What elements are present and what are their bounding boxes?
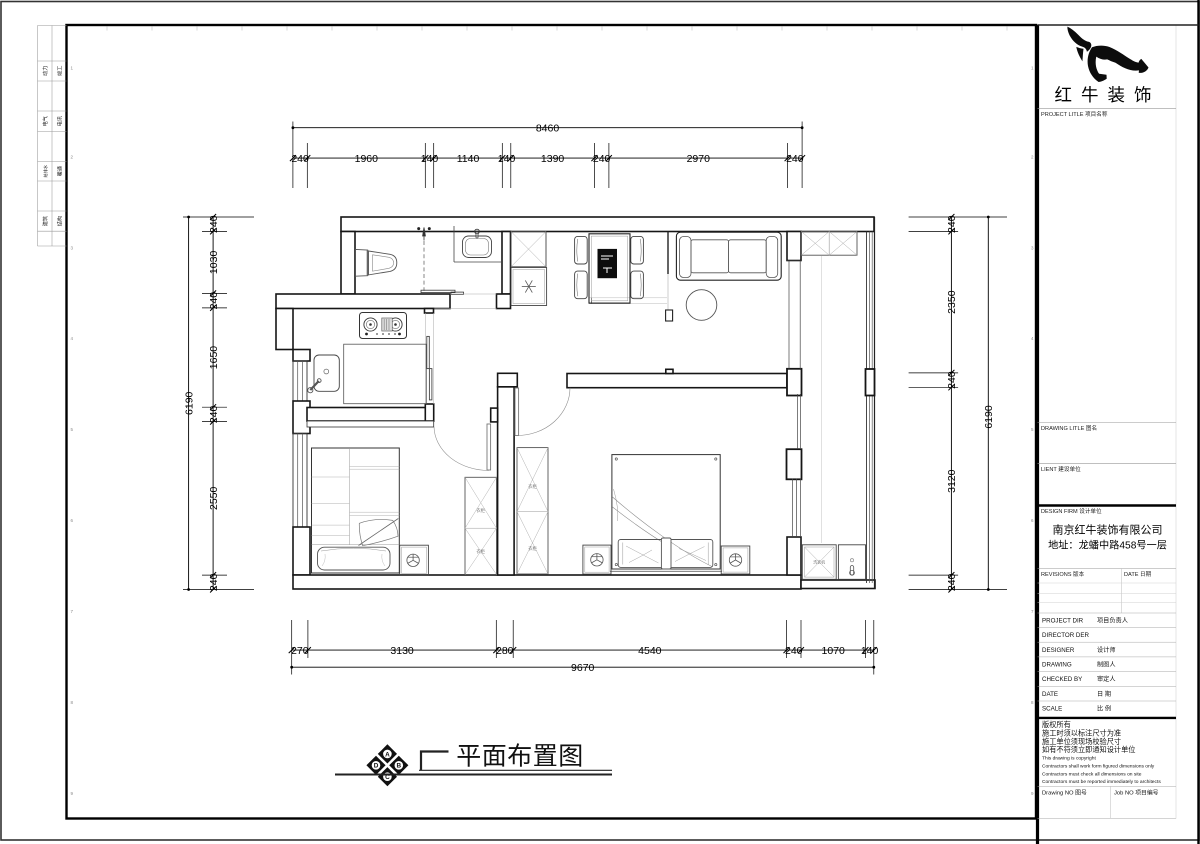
- svg-text:Drawing NO 图号: Drawing NO 图号: [1042, 789, 1087, 797]
- svg-text:衣柜: 衣柜: [476, 548, 485, 555]
- svg-text:DRAWING: DRAWING: [1042, 661, 1072, 668]
- svg-text:电讯: 电讯: [55, 115, 63, 126]
- svg-text:平面布置图: 平面布置图: [456, 743, 584, 771]
- svg-text:240: 240: [946, 371, 958, 389]
- svg-text:竣工: 竣工: [55, 66, 63, 76]
- svg-text:240: 240: [785, 645, 803, 657]
- svg-text:6190: 6190: [983, 405, 995, 429]
- svg-text:动力: 动力: [41, 66, 49, 76]
- svg-text:240: 240: [208, 292, 220, 310]
- svg-text:Job NO 项目编号: Job NO 项目编号: [1114, 789, 1159, 797]
- svg-text:Contractors must check all dim: Contractors must check all dimensions on…: [1042, 771, 1142, 777]
- svg-text:DATE: DATE: [1042, 691, 1058, 698]
- svg-text:衣柜: 衣柜: [528, 545, 537, 552]
- svg-text:240: 240: [946, 573, 958, 591]
- svg-text:SCALE: SCALE: [1042, 706, 1062, 713]
- svg-text:比 例: 比 例: [1097, 705, 1111, 713]
- svg-text:240: 240: [208, 405, 220, 423]
- svg-text:Contractors shall work form fi: Contractors shall work form figured dime…: [1042, 763, 1155, 769]
- svg-text:DRAWING LITLE 图名: DRAWING LITLE 图名: [1041, 424, 1097, 432]
- svg-text:Contractors must be reported i: Contractors must be reported immediately…: [1042, 779, 1161, 785]
- svg-text:2550: 2550: [208, 487, 220, 511]
- svg-text:DATE 日期: DATE 日期: [1124, 571, 1152, 578]
- svg-text:红牛装饰: 红牛装饰: [1055, 85, 1161, 105]
- svg-text:建筑: 建筑: [41, 215, 49, 226]
- svg-text:D: D: [374, 763, 379, 770]
- svg-text:280: 280: [496, 645, 514, 657]
- svg-text:电气: 电气: [41, 116, 49, 126]
- svg-text:审定人: 审定人: [1097, 675, 1116, 683]
- svg-text:地址：龙蟠中路458号一层: 地址：龙蟠中路458号一层: [1048, 539, 1167, 552]
- svg-text:衣柜: 衣柜: [528, 483, 537, 490]
- svg-text:2350: 2350: [946, 290, 958, 314]
- svg-text:This drawing is copyright: This drawing is copyright: [1042, 756, 1096, 762]
- svg-text:A: A: [385, 751, 390, 758]
- svg-text:日 期: 日 期: [1097, 690, 1111, 698]
- svg-text:140: 140: [861, 645, 879, 657]
- svg-text:8460: 8460: [536, 122, 560, 134]
- svg-text:1650: 1650: [208, 346, 220, 370]
- svg-text:DESIGN FIRM 设计单位: DESIGN FIRM 设计单位: [1041, 507, 1102, 515]
- svg-text:1960: 1960: [355, 153, 379, 165]
- svg-text:6190: 6190: [183, 391, 195, 415]
- svg-text:140: 140: [498, 153, 516, 165]
- svg-text:240: 240: [946, 215, 958, 233]
- svg-text:9670: 9670: [571, 662, 595, 674]
- svg-text:PROJECT LITLE 项目名称: PROJECT LITLE 项目名称: [1041, 110, 1108, 118]
- svg-text:4540: 4540: [638, 645, 662, 657]
- svg-text:CHECKED BY: CHECKED BY: [1042, 676, 1082, 683]
- svg-text:南京红牛装饰有限公司: 南京红牛装饰有限公司: [1053, 523, 1163, 537]
- svg-text:240: 240: [208, 573, 220, 591]
- svg-text:项目负责人: 项目负责人: [1097, 616, 1128, 624]
- svg-text:制图人: 制图人: [1097, 660, 1116, 668]
- svg-text:LIENT 建设单位: LIENT 建设单位: [1041, 465, 1081, 473]
- svg-text:240: 240: [291, 153, 309, 165]
- svg-text:240: 240: [786, 153, 804, 165]
- svg-text:240: 240: [593, 153, 611, 165]
- svg-text:3120: 3120: [946, 469, 958, 493]
- svg-text:洗衣机: 洗衣机: [813, 559, 825, 565]
- svg-text:140: 140: [421, 153, 439, 165]
- svg-text:结构: 结构: [55, 216, 63, 226]
- svg-text:REVISIONS 版本: REVISIONS 版本: [1041, 570, 1085, 578]
- svg-text:2970: 2970: [687, 153, 711, 165]
- svg-text:B: B: [396, 763, 401, 770]
- svg-text:1390: 1390: [541, 153, 565, 165]
- svg-text:1070: 1070: [822, 645, 846, 657]
- svg-text:衣柜: 衣柜: [476, 507, 485, 514]
- svg-text:DESIGNER: DESIGNER: [1042, 647, 1075, 654]
- svg-text:1030: 1030: [208, 251, 220, 275]
- svg-text:1140: 1140: [457, 153, 480, 165]
- svg-text:如有不符须立即通知设计单位: 如有不符须立即通知设计单位: [1042, 745, 1135, 754]
- svg-text:DIRECTOR DER: DIRECTOR DER: [1042, 632, 1090, 639]
- svg-text:设计师: 设计师: [1097, 646, 1116, 654]
- svg-text:270: 270: [291, 645, 309, 657]
- svg-text:给排水: 给排水: [42, 164, 49, 177]
- svg-text:240: 240: [208, 215, 220, 233]
- svg-text:3130: 3130: [390, 645, 414, 657]
- svg-text:PROJECT DIR: PROJECT DIR: [1042, 617, 1084, 624]
- svg-text:暖通: 暖通: [55, 165, 63, 176]
